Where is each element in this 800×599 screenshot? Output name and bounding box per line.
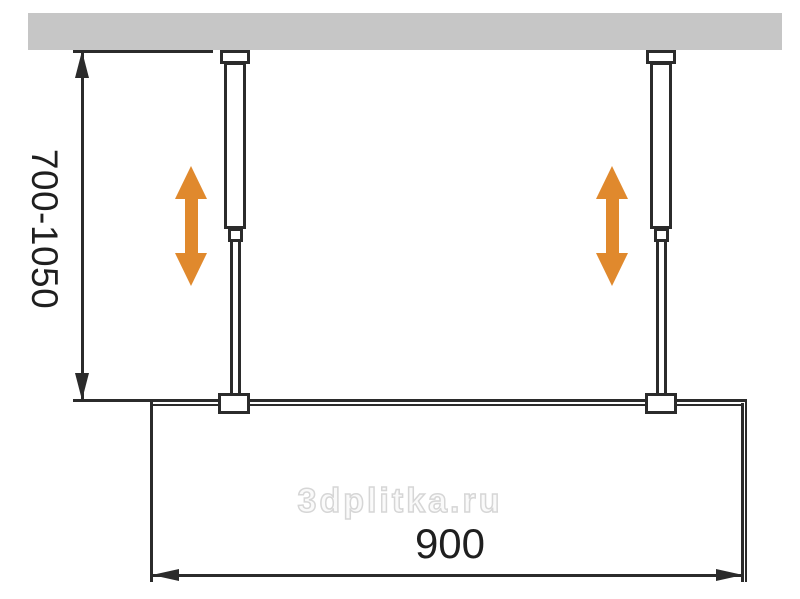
arrow-head-down: [175, 253, 207, 286]
installation-diagram: 700-1050 900 3dplitka.ru: [0, 0, 800, 599]
glass-panel-right-outer-edge: [745, 399, 748, 582]
arrow-shaft: [185, 199, 198, 253]
right-inner-rod: [656, 240, 667, 396]
width-dimension-line: [152, 574, 743, 577]
height-dimension-arrow-up-icon: [75, 51, 89, 78]
right-glass-clamp: [645, 393, 677, 414]
left-upper-tube: [224, 62, 246, 229]
glass-panel-left-edge: [150, 399, 154, 582]
height-dimension-line: [81, 51, 84, 400]
arrow-head-up: [596, 166, 628, 199]
ceiling-bar: [28, 13, 782, 50]
arrow-shaft: [606, 199, 619, 253]
left-ceiling-bracket: [220, 50, 250, 64]
right-height-adjust-arrow-icon: [596, 166, 628, 286]
height-dimension-label: 700-1050: [23, 144, 65, 314]
arrow-head-up: [175, 166, 207, 199]
left-adjuster-collar: [228, 228, 243, 242]
arrow-head-down: [596, 253, 628, 286]
glass-panel-right-inner-edge: [741, 403, 744, 582]
height-dimension-arrow-down-icon: [75, 373, 89, 400]
width-dimension-label: 900: [380, 522, 520, 566]
right-ceiling-bracket: [646, 50, 676, 64]
left-height-adjust-arrow-icon: [175, 166, 207, 286]
site-watermark: 3dplitka.ru: [200, 479, 600, 527]
right-upper-tube: [650, 62, 672, 229]
width-dimension-arrow-left-icon: [152, 569, 179, 581]
left-glass-clamp: [218, 393, 250, 414]
right-adjuster-collar: [654, 228, 669, 242]
height-dimension-extension-line: [73, 50, 213, 53]
left-inner-rod: [230, 240, 241, 396]
width-dimension-arrow-right-icon: [716, 569, 743, 581]
